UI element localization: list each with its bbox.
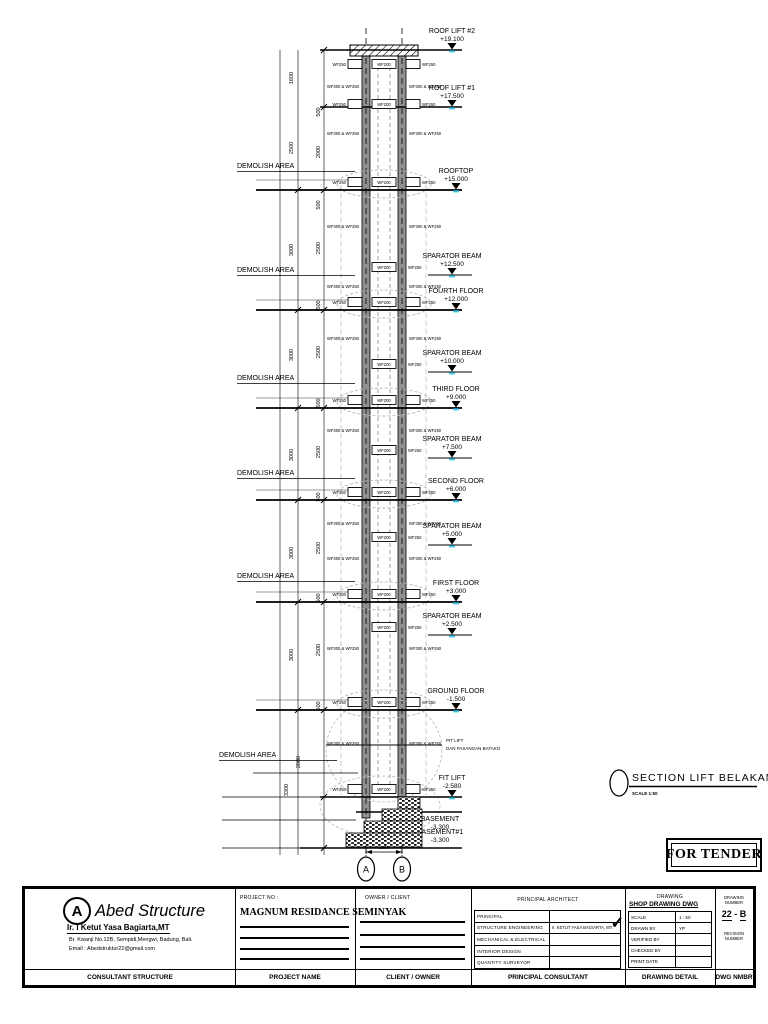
consultant-email: Email : Abedstruktur22@gmail.com [69,946,155,952]
scale-value: 1 : 50 [676,915,711,920]
demolish-area-label: DEMOLISH AREA [237,470,295,477]
beam-label: WF200 [377,490,391,495]
wall-beam-label: WF300 & WF250 [327,646,360,651]
level-elevation: +6.000 [446,486,466,493]
beam-label: WF200 [377,102,391,107]
title-block: A Abed Structure Ir. I Ketut Yasa Bagiar… [22,886,756,988]
dimension-text: 500 [316,398,322,407]
dimension-text: 2500 [316,346,322,358]
beam-label: WF250 [333,398,347,403]
wall-beam-label: WF300 & WF250 [327,284,360,289]
dimension-text: 2500 [316,242,322,254]
beam-flange-box [406,178,420,187]
drawing-label: DRAWING [625,894,715,900]
level-name: ROOF LIFT #2 [429,28,475,35]
step-footing [364,821,422,833]
beam-label: WF200 [377,265,391,270]
level-name: SPARATOR BEAM [422,613,481,620]
wall-beam-label: WF300 & WF250 [409,521,442,526]
dimension-text: 2000 [296,756,302,768]
beam-label: WF200 [377,592,391,597]
beam-label: WF250 [333,62,347,67]
demolish-area-label: DEMOLISH AREA [237,573,295,580]
wall-beam-label: WF300 & WF250 [409,556,442,561]
dim-arrow [366,850,372,854]
level-name: FOURTH FLOOR [428,288,483,295]
level-name: THIRD FLOOR [432,386,479,393]
level-marker [452,493,461,500]
level-name: BASEMENT#1 [417,829,463,836]
beam-label: WF200 [377,535,391,540]
beam-flange-box [406,60,420,69]
level-marker [452,595,461,602]
company-logo: A [63,897,91,925]
level-marker [448,268,457,275]
pit-lift-note-line2: DAN PASANGAN BATAKO [446,746,501,751]
beam-flange-box [348,488,362,497]
level-elevation: +12.500 [440,261,464,268]
client-column: OWNER / CLIENT CLIENT / OWNER [355,889,472,985]
level-name: SPARATOR BEAM [422,350,481,357]
fill-line [360,946,465,948]
grid-bubble-label: A [363,865,369,875]
beam-label: WF250 [422,300,436,305]
dimension-text: 500 [316,200,322,209]
beam-label: WF200 [377,180,391,185]
dimension-text: 500 [316,593,322,602]
project-column: PROJECT NO : MAGNUM RESIDANCE SEMINYAK P… [235,889,356,985]
checked-by-label: CHECKED BY [629,946,676,956]
dimension-text: 3000 [289,349,295,361]
beam-label: WF200 [377,62,391,67]
drawing-number-label: DRAWING NUMBER [715,895,753,905]
dwg-number-footer: DWG NMBR [715,969,753,985]
for-tender-label: FOR TENDER [671,843,757,867]
level-marker [448,628,457,635]
step-footing [398,797,420,809]
consultant-principal: Ir. I Ketut Yasa Bagiarta,MT [67,923,170,934]
beam-label: WF200 [377,625,391,630]
dimension-text: 500 [316,107,322,116]
level-marker [452,303,461,310]
level-name: SPARATOR BEAM [422,436,481,443]
step-footing [382,809,422,821]
beam-flange-box [406,698,420,707]
project-no-label: PROJECT NO : [240,895,279,901]
level-elevation: +10.000 [440,358,464,365]
beam-label: WF250 [422,62,436,67]
level-name: FIT LIFT [439,775,466,782]
beam-label: WF250 [333,300,347,305]
level-name: ROOFTOP [439,168,474,175]
level-elevation: -3.300 [431,837,450,844]
approval-check-icon: ✓ [611,913,624,933]
drawing-detail-footer: DRAWING DETAIL [625,969,715,985]
beam-flange-box [348,396,362,405]
level-elevation: +7.500 [442,444,462,451]
drawing-type: SHOP DRAWING DWG [629,901,698,908]
beam-label: WF200 [377,787,391,792]
consultants-table: PRINCIPAL STRUCTURE ENGINEERINGIr. KETUT… [474,910,621,969]
wall-beam-label: WF300 & WF250 [327,556,360,561]
dimension-text: 2500 [316,542,322,554]
level-elevation: +12.000 [444,296,468,303]
level-marker [448,538,457,545]
wall-beam-label: WF300 & WF250 [409,646,442,651]
drawing-detail-column: DRAWING SHOP DRAWING DWG SCALE1 : 50 DRA… [625,889,716,985]
beam-flange-box [348,60,362,69]
level-name: SECOND FLOOR [428,478,484,485]
beam-label: WF250 [408,448,422,453]
level-name: SPARATOR BEAM [422,253,481,260]
beam-flange-box [348,698,362,707]
wall-beam-label: WF300 & WF250 [409,336,442,341]
dimension-text: 3000 [289,244,295,256]
beam-flange-box [406,396,420,405]
wall-beam-label: WF300 & WF250 [409,224,442,229]
level-name: BASEMENT [421,816,460,823]
beam-label: WF250 [408,535,422,540]
beam-label: WF250 [408,265,422,270]
level-marker [452,183,461,190]
demolish-area-label: DEMOLISH AREA [237,267,295,274]
dimension-text: 500 [316,492,322,501]
dim-arrow [396,850,402,854]
structure-engineer-value: Ir. KETUT YASA BAGIARTA, MT. [550,925,620,930]
wall-beam-label: WF300 & WF250 [409,131,442,136]
beam-flange-box [348,100,362,109]
fill-line [360,921,465,923]
beam-flange-box [406,590,420,599]
section-drawing: PIT LIFT DAN PASANGAN BATAKO SECTION LIF… [0,0,768,884]
level-elevation: -2.580 [443,783,462,790]
beam-flange-box [406,100,420,109]
dimension-text: 3000 [289,449,295,461]
level-marker [448,790,457,797]
wall-beam-label: WF300 & WF250 [327,224,360,229]
beam-flange-box [406,488,420,497]
fill-line [240,948,349,950]
demolish-area-label: DEMOLISH AREA [237,375,295,382]
print-date-label: PRINT DATE [629,957,676,967]
level-elevation: -1.500 [447,696,466,703]
level-name: GROUND FLOOR [427,688,484,695]
level-elevation: +9.000 [446,394,466,401]
revision-number-label: REVISION NUMBER [715,931,753,941]
fill-line [360,934,465,936]
row-quantity-surveyor: QUANTITY SURVEYOR [475,957,550,968]
grid-dimension-text: 1800 [379,845,390,850]
beam-label: WF200 [377,448,391,453]
section-marker-circle [610,770,628,796]
consultant-footer: CONSULTANT STRUCTURE [25,969,235,985]
beam-label: WF250 [333,787,347,792]
beam-label: WF250 [422,102,436,107]
wall-beam-label: WF300 & WF250 [327,428,360,433]
verified-by-label: VERIFIED BY [629,934,676,944]
fill-line [240,926,349,928]
principal-architect-label: PRINCIPAL ARCHITECT [471,897,625,903]
wall-beam-label: WF300 & WF250 [327,521,360,526]
principal-consultant-footer: PRINCIPAL CONSULTANT [471,969,625,985]
beam-label: WF250 [333,700,347,705]
project-footer: PROJECT NAME [235,969,355,985]
beam-flange-box [406,785,420,794]
beam-label: WF250 [422,490,436,495]
demolish-area-label: DEMOLISH AREA [219,752,277,759]
beam-flange-box [348,590,362,599]
fill-line [360,958,465,960]
beam-label: WF200 [377,362,391,367]
wall-beam-label: WF300 & WF250 [409,428,442,433]
wall-beam-label: WF300 & WF250 [327,131,360,136]
owner-client-label: OWNER / CLIENT [365,895,410,901]
dimension-text: 3000 [289,649,295,661]
beam-label: WF250 [422,700,436,705]
demolish-area-label: DEMOLISH AREA [237,163,295,170]
level-elevation: +19.100 [440,36,464,43]
drawing-info-table: SCALE1 : 50 DRAWN BYYP VERIFIED BY CHECK… [628,911,712,968]
beam-flange-box [348,785,362,794]
beam-flange-box [348,178,362,187]
level-marker [448,451,457,458]
level-elevation: +3.000 [446,588,466,595]
level-elevation: +5.000 [442,531,462,538]
beam-label: WF250 [408,625,422,630]
level-marker [448,100,457,107]
beam-label: WF250 [333,102,347,107]
beam-label: WF200 [377,300,391,305]
beam-label: WF200 [377,700,391,705]
section-title-group: SECTION LIFT BELAKANG SCALE 1:50 [610,770,768,796]
for-tender-stamp: FOR TENDER [666,838,762,872]
beam-flange-box [406,298,420,307]
dimension-text: 500 [316,300,322,309]
dimension-text: 500 [316,701,322,710]
wall-beam-label: WF300 & WF250 [409,84,442,89]
beam-label: WF250 [333,490,347,495]
row-structure-engineering: STRUCTURE ENGINEERING [475,923,550,934]
dimension-text: 3000 [289,547,295,559]
drawing-number-column: DRAWING NUMBER 22 - B REVISION NUMBER DW… [715,889,753,985]
dimension-text: 2500 [316,446,322,458]
wall-beam-label: WF300 & WF250 [327,336,360,341]
level-elevation: +15.000 [444,176,468,183]
level-marker [452,703,461,710]
fill-line [240,958,349,960]
dimension-text: 2000 [316,146,322,158]
wall-beam-label: WF300 & WF250 [409,284,442,289]
beam-flange-box [348,298,362,307]
dimension-text: 2500 [289,142,295,154]
dimension-text: 2500 [316,644,322,656]
principal-consultant-column: PRINCIPAL ARCHITECT PRINCIPAL STRUCTURE … [471,889,626,985]
level-marker [452,401,461,408]
dimension-text: 3300 [284,784,290,796]
beam-label: WF250 [422,398,436,403]
row-principal: PRINCIPAL [475,911,550,922]
level-marker [448,365,457,372]
beam-label: WF250 [333,592,347,597]
consultant-address: Br. Kwanji No.12B, Sempidi,Mengwi, Badun… [69,937,193,943]
beam-label: WF250 [422,787,436,792]
consultant-column: A Abed Structure Ir. I Ketut Yasa Bagiar… [25,889,236,985]
scale-label: SCALE [629,912,676,922]
client-footer: CLIENT / OWNER [355,969,471,985]
section-title: SECTION LIFT BELAKANG [632,772,768,784]
dimension-text: 1600 [289,72,295,84]
pit-lift-note-line1: PIT LIFT [446,738,464,743]
row-mechanical-electrical: MECHANICAL & ELECTRICAL [475,934,550,945]
beam-label: WF200 [377,398,391,403]
wall-beam-label: WF300 & WF250 [327,84,360,89]
fill-line [240,937,349,939]
level-marker [448,43,457,50]
beam-label: WF250 [422,180,436,185]
drawing-sheet: PIT LIFT DAN PASANGAN BATAKO SECTION LIF… [0,0,768,1024]
level-elevation: +2.500 [442,621,462,628]
level-name: FIRST FLOOR [433,580,479,587]
level-elevation: +17.500 [440,93,464,100]
beam-label: WF250 [408,362,422,367]
beam-label: WF250 [333,180,347,185]
grid-bubble-label: B [399,865,405,875]
row-interior-design: INTERIOR DESIGN [475,946,550,957]
beam-label: WF250 [422,592,436,597]
section-scale: SCALE 1:50 [632,791,658,796]
drawing-number-value: 22 - B [715,909,753,919]
company-name: Abed Structure [95,902,205,921]
drawn-by-label: DRAWN BY [629,923,676,933]
drawn-by-value: YP [676,926,711,931]
